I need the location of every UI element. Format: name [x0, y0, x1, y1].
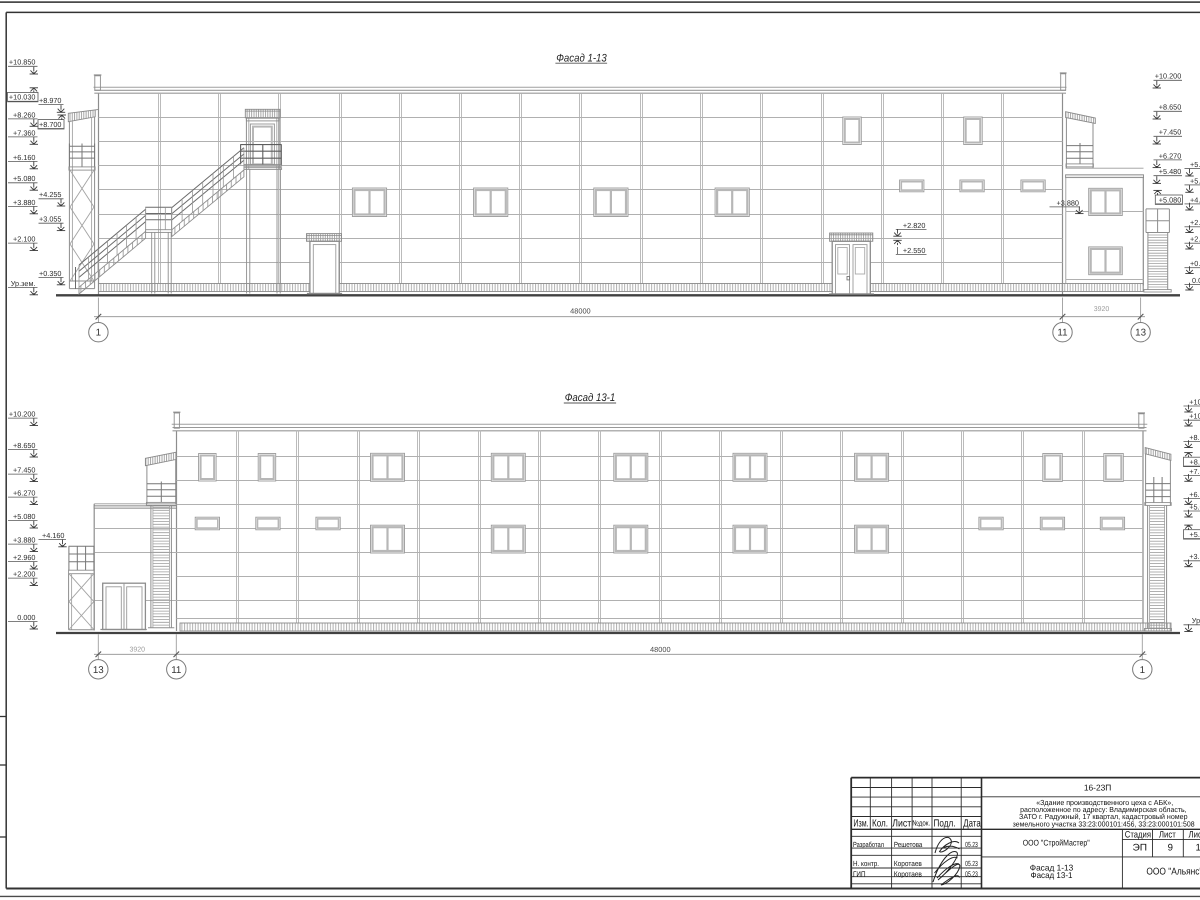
svg-text:+5.080: +5.080: [13, 174, 36, 183]
svg-text:+4.25: +4.25: [1190, 195, 1200, 204]
svg-text:ООО "СтройМастер": ООО "СтройМастер": [1023, 838, 1090, 848]
svg-text:+2.960: +2.960: [13, 553, 36, 562]
svg-text:+8.700: +8.700: [39, 120, 62, 129]
svg-text:1: 1: [1140, 665, 1145, 676]
svg-text:+7.450: +7.450: [1159, 128, 1182, 137]
svg-text:+3.880: +3.880: [1056, 198, 1079, 207]
svg-text:Разработал: Разработал: [853, 840, 884, 849]
svg-text:Лист: Лист: [1189, 829, 1200, 839]
svg-text:05.23: 05.23: [965, 840, 978, 849]
svg-text:+7.360: +7.360: [13, 128, 36, 137]
svg-text:+5.48: +5.48: [1190, 530, 1200, 539]
svg-text:Коротаев: Коротаев: [894, 859, 922, 868]
svg-text:+5.08: +5.08: [1190, 176, 1200, 185]
svg-text:ЭП: ЭП: [1133, 843, 1148, 854]
svg-text:Фасад 1-13: Фасад 1-13: [556, 52, 607, 64]
svg-text:11: 11: [171, 665, 181, 676]
svg-text:+10.850: +10.850: [9, 58, 36, 67]
svg-text:+10.85: +10.85: [1189, 397, 1200, 406]
svg-text:+10.030: +10.030: [9, 93, 36, 102]
svg-text:+10.200: +10.200: [1155, 72, 1182, 81]
svg-text:+8.970: +8.970: [39, 96, 62, 105]
svg-text:48000: 48000: [570, 307, 591, 316]
svg-text:+0.35: +0.35: [1190, 259, 1200, 268]
svg-text:+2.550: +2.550: [903, 246, 926, 255]
svg-text:+6.270: +6.270: [1159, 151, 1182, 160]
svg-text:Решетова: Решетова: [894, 840, 923, 849]
svg-text:9: 9: [1168, 843, 1173, 854]
svg-text:+2.100: +2.100: [13, 235, 36, 244]
svg-text:+2.55: +2.55: [1190, 235, 1200, 244]
svg-text:+6.270: +6.270: [13, 489, 36, 498]
svg-text:Подл.: Подл.: [934, 818, 956, 829]
svg-text:3920: 3920: [130, 647, 146, 654]
svg-text:05.23: 05.23: [965, 870, 978, 879]
svg-text:Ур.зем.: Ур.зем.: [11, 279, 36, 288]
svg-text:Фасад 13-1: Фасад 13-1: [1031, 870, 1073, 880]
svg-text:+5.48: +5.48: [1190, 160, 1200, 169]
svg-text:+2.200: +2.200: [13, 570, 36, 579]
svg-text:+5.08: +5.08: [1189, 502, 1200, 511]
svg-text:+8.70: +8.70: [1190, 458, 1200, 467]
svg-text:+4.160: +4.160: [42, 531, 65, 540]
svg-text:ООО "Альянс": ООО "Альянс": [1146, 867, 1200, 878]
svg-text:3920: 3920: [1094, 306, 1110, 313]
svg-text:+10.03: +10.03: [1189, 412, 1200, 421]
svg-text:1: 1: [96, 328, 101, 339]
svg-text:+0.350: +0.350: [39, 269, 62, 278]
svg-text:+7.450: +7.450: [13, 466, 36, 475]
svg-text:+3.880: +3.880: [13, 536, 36, 545]
svg-text:Фасад 13-1: Фасад 13-1: [565, 392, 616, 404]
svg-text:16-23П: 16-23П: [1084, 782, 1112, 792]
svg-text:+5.480: +5.480: [1159, 167, 1182, 176]
svg-text:Изм.: Изм.: [853, 818, 868, 829]
svg-text:+3.055: +3.055: [39, 215, 62, 224]
svg-text:Стадия: Стадия: [1125, 829, 1151, 839]
svg-text:05.23: 05.23: [965, 859, 978, 868]
svg-text:+8.26: +8.26: [1189, 433, 1200, 442]
svg-text:+5.080: +5.080: [13, 512, 36, 521]
svg-text:13: 13: [93, 665, 104, 676]
svg-text:земельного участка 33:23:00010: земельного участка 33:23:000101:456, 33:…: [1013, 819, 1195, 828]
svg-text:Дата: Дата: [963, 818, 981, 829]
svg-text:ГИП: ГИП: [853, 869, 866, 878]
svg-text:+10.200: +10.200: [9, 410, 36, 419]
svg-text:Ур.зем.: Ур.зем.: [1192, 616, 1200, 625]
svg-text:+3.880: +3.880: [13, 198, 36, 207]
svg-text:№док.: №док.: [912, 818, 930, 827]
svg-text:+5.080: +5.080: [1159, 195, 1182, 204]
svg-text:+8.650: +8.650: [1159, 103, 1182, 112]
svg-text:1: 1: [1196, 843, 1200, 854]
svg-text:Лист: Лист: [1159, 829, 1177, 839]
svg-text:Коротаев: Коротаев: [894, 869, 922, 878]
svg-text:11: 11: [1057, 328, 1067, 339]
svg-text:+2.82: +2.82: [1190, 218, 1200, 227]
svg-text:Н. контр.: Н. контр.: [853, 859, 879, 868]
svg-text:+8.260: +8.260: [13, 110, 36, 119]
svg-text:0.000: 0.000: [17, 613, 35, 622]
svg-text:Кол.: Кол.: [872, 818, 888, 829]
svg-text:+2.820: +2.820: [903, 221, 926, 230]
svg-text:+6.16: +6.16: [1189, 490, 1200, 499]
svg-text:+4.255: +4.255: [39, 190, 62, 199]
svg-text:+6.160: +6.160: [13, 153, 36, 162]
svg-text:Лист: Лист: [892, 818, 911, 829]
svg-text:48000: 48000: [650, 645, 671, 654]
svg-text:+3.88: +3.88: [1189, 552, 1200, 561]
svg-text:+7.36: +7.36: [1189, 467, 1200, 476]
svg-text:13: 13: [1135, 328, 1146, 339]
svg-text:0.000: 0.000: [1192, 276, 1200, 285]
svg-text:+8.650: +8.650: [13, 441, 36, 450]
